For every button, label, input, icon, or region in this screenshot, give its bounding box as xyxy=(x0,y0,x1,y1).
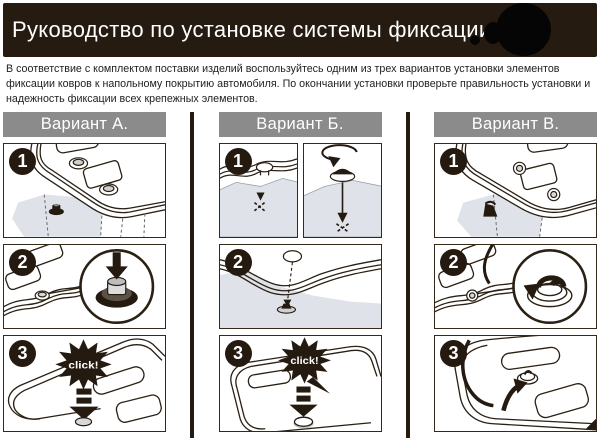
variant-a-label: Вариант А. xyxy=(41,115,129,134)
click-label: click! xyxy=(68,360,98,371)
logo-circle xyxy=(496,3,551,56)
magnifier-circle xyxy=(80,250,152,322)
screw-fastener-icon xyxy=(330,169,354,182)
cord-line xyxy=(484,245,493,283)
grommet-icon xyxy=(293,417,313,428)
variant-a-step-1-panel: 1 xyxy=(3,143,166,238)
header: Руководство по установке системы фиксаци… xyxy=(3,3,597,57)
magnifier-circle xyxy=(513,250,585,322)
variant-b-column: Вариант Б. 1 xyxy=(219,112,382,438)
attach-arrow-icon xyxy=(503,378,527,410)
variant-a-step-2-panel: 2 xyxy=(3,244,166,329)
logo-dot xyxy=(470,35,480,45)
variant-b-step-1b-panel xyxy=(303,143,382,238)
column-divider xyxy=(190,112,194,438)
variant-a-header: Вариант А. xyxy=(3,112,166,137)
variant-b-step-2-panel: 2 xyxy=(219,244,382,329)
variant-a-column: Вариант А. 1 xyxy=(3,112,166,438)
step-number-badge: 2 xyxy=(440,249,467,276)
click-burst: click! xyxy=(55,339,111,389)
variant-a-step-3-panel: 3 click! xyxy=(3,335,166,432)
step-number-badge: 1 xyxy=(225,148,252,175)
variants-container: Вариант А. 1 xyxy=(3,112,597,438)
variant-b-label: Вариант Б. xyxy=(256,115,343,134)
press-down-arrow-icon xyxy=(69,389,98,420)
step-number-badge: 1 xyxy=(9,148,36,175)
press-down-arrow-icon xyxy=(289,387,317,417)
variant-c-header: Вариант В. xyxy=(434,112,597,137)
variant-c-step-3-panel: 3 xyxy=(434,335,597,432)
clip-fastener-icon xyxy=(256,163,272,176)
grommet-icon xyxy=(283,251,301,262)
click-burst: click! xyxy=(278,337,331,393)
step-number-badge: 3 xyxy=(9,340,36,367)
eyelet-icon xyxy=(467,290,478,301)
variant-b-step-1a-panel: 1 xyxy=(219,143,298,238)
intro-text: В соответствие с комплектом поставки изд… xyxy=(6,62,595,108)
click-label: click! xyxy=(290,357,318,367)
variant-c-column: Вариант В. 1 xyxy=(434,112,597,438)
variant-b-step-1-row: 1 xyxy=(219,143,382,244)
grommet-icon xyxy=(35,291,49,300)
column-divider xyxy=(406,112,410,438)
variant-b-header: Вариант Б. xyxy=(219,112,382,137)
step-number-badge: 3 xyxy=(225,340,252,367)
page-title: Руководство по установке системы фиксаци… xyxy=(12,17,491,43)
variant-b-step-1b-illustration xyxy=(304,144,381,237)
variant-c-step-1-panel: 1 xyxy=(434,143,597,238)
rotate-arrow-icon xyxy=(322,145,356,167)
corner-shade xyxy=(586,419,596,430)
variant-c-step-2-panel: 2 xyxy=(434,244,597,329)
variant-b-step-3-panel: 3 click! xyxy=(219,335,382,432)
step-number-badge: 3 xyxy=(440,340,467,367)
step-number-badge: 2 xyxy=(9,249,36,276)
step-number-badge: 1 xyxy=(440,148,467,175)
step-number-badge: 2 xyxy=(225,249,252,276)
variant-c-label: Вариант В. xyxy=(472,115,560,134)
grommet-icon xyxy=(75,418,91,426)
